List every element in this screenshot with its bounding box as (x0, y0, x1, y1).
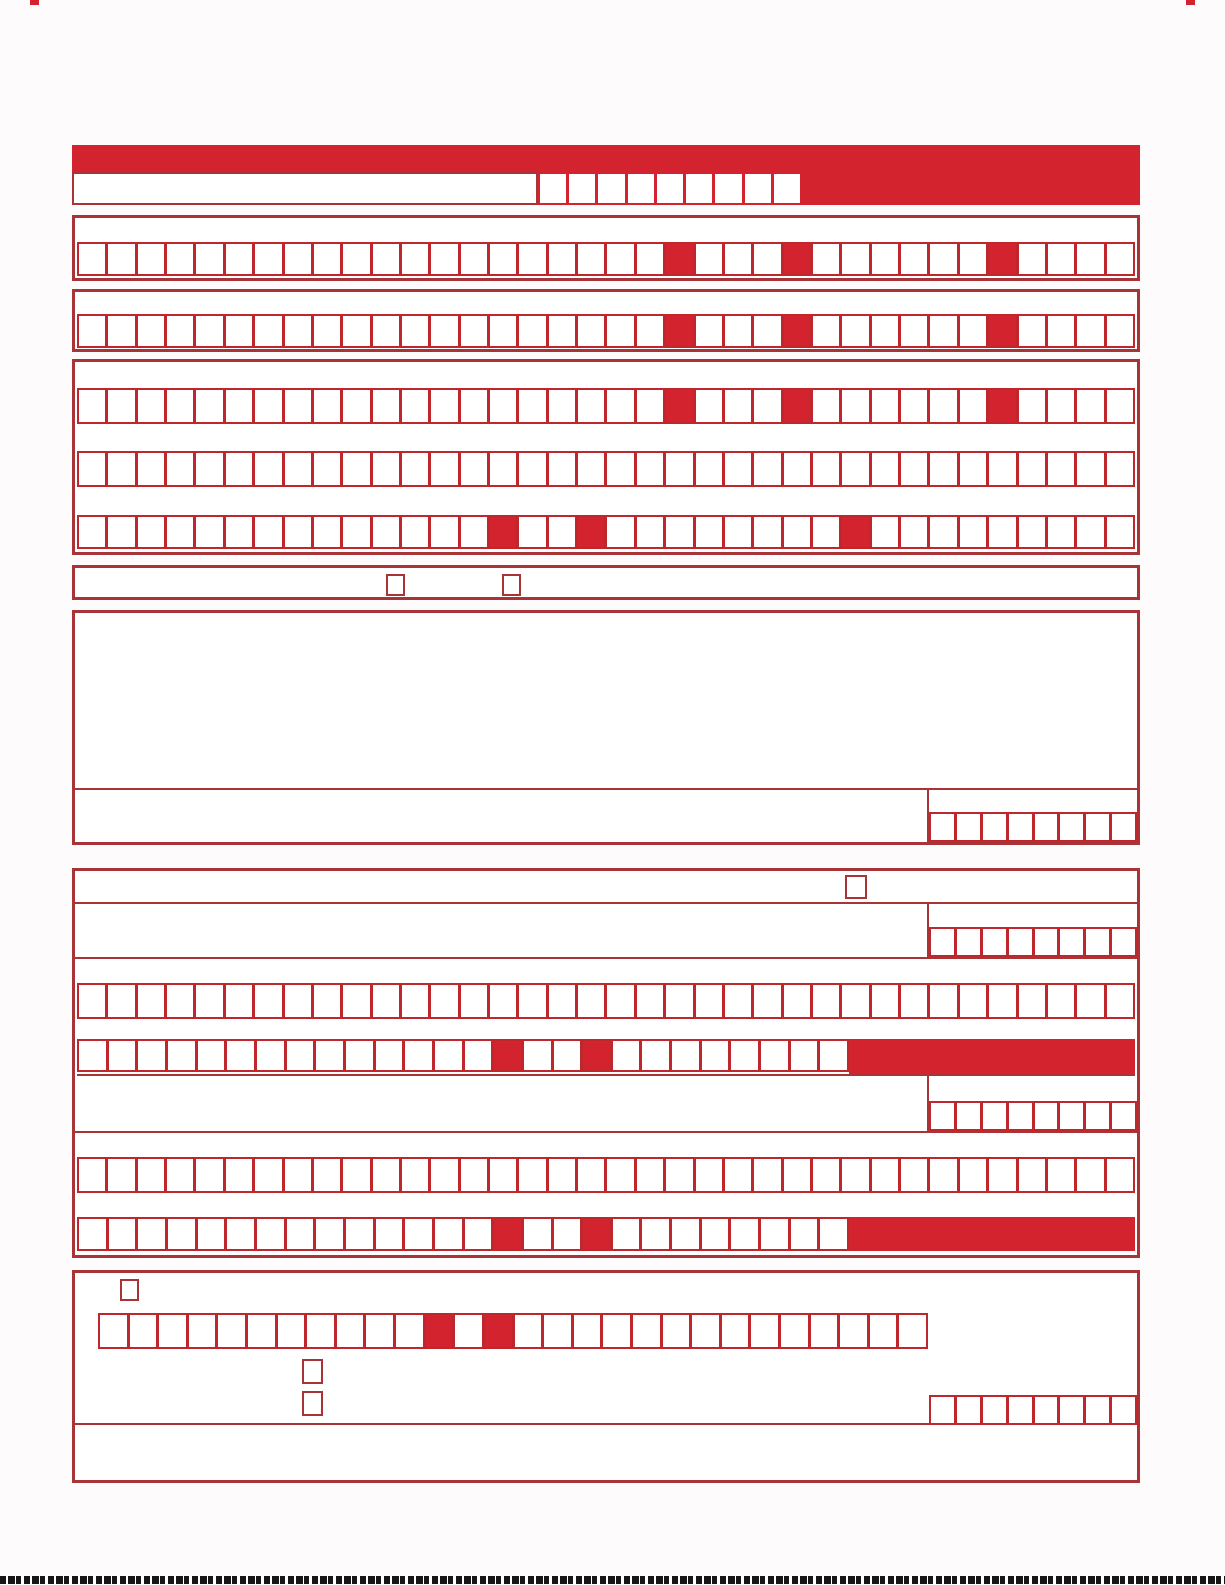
char-cell[interactable] (196, 517, 222, 547)
char-cell[interactable] (598, 174, 624, 203)
char-cell[interactable] (1060, 1103, 1083, 1129)
char-cell[interactable] (672, 1041, 699, 1070)
char-cell[interactable] (196, 1159, 222, 1191)
char-cell[interactable] (343, 316, 369, 346)
char-cell[interactable] (108, 1159, 134, 1191)
char-cell[interactable] (872, 390, 898, 422)
char-cell[interactable] (931, 1103, 954, 1129)
char-cell[interactable] (607, 453, 633, 485)
char-cell[interactable] (196, 453, 222, 485)
char-cell[interactable] (109, 1041, 136, 1070)
consent-checkbox-option-1[interactable] (302, 1359, 323, 1384)
char-cell[interactable] (435, 1041, 462, 1070)
char-cell[interactable] (784, 985, 810, 1017)
char-cell[interactable] (642, 1219, 669, 1249)
char-cell[interactable] (515, 1315, 542, 1347)
char-cell[interactable] (1077, 316, 1103, 346)
char-cell[interactable] (1019, 453, 1045, 485)
char-cell[interactable] (754, 1159, 780, 1191)
char-cell[interactable] (781, 1315, 808, 1347)
char-cell[interactable] (167, 517, 193, 547)
char-cell[interactable] (725, 1159, 751, 1191)
char-cell[interactable] (715, 174, 741, 203)
char-cell[interactable] (666, 517, 692, 547)
char-cell[interactable] (402, 453, 428, 485)
char-cell[interactable] (842, 316, 868, 346)
char-cell[interactable] (1048, 244, 1074, 274)
char-cell[interactable] (108, 453, 134, 485)
char-cell[interactable] (931, 1397, 954, 1423)
char-cell[interactable] (79, 244, 105, 274)
char-cell[interactable] (405, 1219, 432, 1249)
char-cell[interactable] (79, 1041, 106, 1070)
char-cell[interactable] (549, 517, 575, 547)
char-cell[interactable] (702, 1041, 729, 1070)
char-cell[interactable] (167, 1159, 193, 1191)
char-cell[interactable] (607, 1159, 633, 1191)
char-cell[interactable] (901, 985, 927, 1017)
char-cell[interactable] (490, 316, 516, 346)
char-cell[interactable] (1019, 390, 1045, 422)
char-cell[interactable] (960, 316, 986, 346)
char-cell[interactable] (549, 390, 575, 422)
char-cell[interactable] (257, 1041, 284, 1070)
char-cell[interactable] (666, 453, 692, 485)
char-cell[interactable] (872, 985, 898, 1017)
char-cell[interactable] (983, 814, 1006, 840)
char-cell[interactable] (1019, 1159, 1045, 1191)
option-checkbox-1[interactable] (386, 574, 405, 596)
char-cell[interactable] (1077, 244, 1103, 274)
char-cell[interactable] (872, 244, 898, 274)
char-cell[interactable] (168, 1041, 195, 1070)
char-cell[interactable] (930, 453, 956, 485)
char-cell[interactable] (722, 1315, 749, 1347)
char-cell[interactable] (316, 1041, 343, 1070)
char-cell[interactable] (79, 316, 105, 346)
char-cell[interactable] (79, 1159, 105, 1191)
char-cell[interactable] (549, 985, 575, 1017)
char-cell[interactable] (784, 517, 810, 547)
char-cell[interactable] (285, 390, 311, 422)
char-cell[interactable] (1112, 1103, 1135, 1129)
char-cell[interactable] (314, 244, 340, 274)
char-cell[interactable] (519, 244, 545, 274)
char-cell[interactable] (519, 316, 545, 346)
char-cell[interactable] (431, 316, 457, 346)
char-cell[interactable] (461, 985, 487, 1017)
char-cell[interactable] (574, 1315, 601, 1347)
char-cell[interactable] (519, 517, 545, 547)
char-cell[interactable] (731, 1041, 758, 1070)
char-cell[interactable] (226, 1159, 252, 1191)
char-cell[interactable] (901, 1159, 927, 1191)
char-cell[interactable] (431, 985, 457, 1017)
char-cell[interactable] (637, 985, 663, 1017)
char-cell[interactable] (524, 1041, 551, 1070)
char-cell[interactable] (791, 1219, 818, 1249)
char-cell[interactable] (402, 1159, 428, 1191)
char-cell[interactable] (343, 390, 369, 422)
char-cell[interactable] (578, 1159, 604, 1191)
char-cell[interactable] (813, 453, 839, 485)
char-cell[interactable] (1009, 1103, 1032, 1129)
char-cell[interactable] (465, 1041, 492, 1070)
consent-checkbox-option-2[interactable] (302, 1391, 323, 1416)
char-cell[interactable] (842, 985, 868, 1017)
char-cell[interactable] (725, 390, 751, 422)
char-cell[interactable] (255, 1159, 281, 1191)
char-cell[interactable] (1035, 1103, 1058, 1129)
char-cell[interactable] (226, 517, 252, 547)
char-cell[interactable] (1107, 1159, 1133, 1191)
char-cell[interactable] (108, 985, 134, 1017)
char-cell[interactable] (692, 1315, 719, 1347)
char-cell[interactable] (287, 1041, 314, 1070)
char-cell[interactable] (196, 390, 222, 422)
char-cell[interactable] (314, 1159, 340, 1191)
char-cell[interactable] (930, 985, 956, 1017)
char-cell[interactable] (607, 517, 633, 547)
char-cell[interactable] (544, 1315, 571, 1347)
char-cell[interactable] (813, 316, 839, 346)
char-cell[interactable] (366, 1315, 393, 1347)
char-cell[interactable] (957, 1397, 980, 1423)
char-cell[interactable] (578, 453, 604, 485)
char-cell[interactable] (813, 1159, 839, 1191)
entry-with-date-row[interactable] (75, 904, 1137, 959)
char-cell[interactable] (754, 316, 780, 346)
char-cell[interactable] (226, 453, 252, 485)
char-cell[interactable] (554, 1041, 581, 1070)
char-cell[interactable] (1048, 1159, 1074, 1191)
char-cell[interactable] (872, 453, 898, 485)
char-cell[interactable] (1086, 1397, 1109, 1423)
char-cell[interactable] (1035, 814, 1058, 840)
char-cell[interactable] (1035, 929, 1058, 955)
char-cell[interactable] (316, 1219, 343, 1249)
char-cell[interactable] (198, 1219, 225, 1249)
char-cell[interactable] (666, 985, 692, 1017)
char-cell[interactable] (519, 1159, 545, 1191)
char-cell[interactable] (346, 1219, 373, 1249)
char-cell[interactable] (603, 1315, 630, 1347)
char-cell[interactable] (1086, 1103, 1109, 1129)
char-cell[interactable] (373, 453, 399, 485)
char-cell[interactable] (314, 985, 340, 1017)
char-cell[interactable] (1077, 517, 1103, 547)
char-cell[interactable] (1107, 244, 1133, 274)
char-cell[interactable] (813, 244, 839, 274)
char-cell[interactable] (1035, 1397, 1058, 1423)
char-cell[interactable] (189, 1315, 216, 1347)
char-cell[interactable] (663, 1315, 690, 1347)
char-cell[interactable] (109, 1219, 136, 1249)
char-cell[interactable] (343, 1159, 369, 1191)
char-cell[interactable] (901, 453, 927, 485)
char-cell[interactable] (607, 316, 633, 346)
char-cell[interactable] (461, 517, 487, 547)
char-cell[interactable] (461, 453, 487, 485)
char-cell[interactable] (314, 316, 340, 346)
char-cell[interactable] (79, 1219, 106, 1249)
free-text-area[interactable] (75, 613, 1137, 790)
char-cell[interactable] (842, 1159, 868, 1191)
char-cell[interactable] (138, 453, 164, 485)
char-cell[interactable] (613, 1219, 640, 1249)
char-cell[interactable] (373, 517, 399, 547)
char-cell[interactable] (373, 316, 399, 346)
char-cell[interactable] (130, 1315, 157, 1347)
char-cell[interactable] (1077, 1159, 1103, 1191)
char-cell[interactable] (549, 244, 575, 274)
entry-with-date-row[interactable] (75, 1076, 1137, 1133)
char-cell[interactable] (167, 453, 193, 485)
char-cell[interactable] (628, 174, 654, 203)
char-cell[interactable] (226, 390, 252, 422)
char-cell[interactable] (842, 390, 868, 422)
char-cell[interactable] (108, 316, 134, 346)
char-cell[interactable] (159, 1315, 186, 1347)
char-cell[interactable] (725, 244, 751, 274)
char-cell[interactable] (1019, 244, 1045, 274)
char-cell[interactable] (226, 985, 252, 1017)
char-cell[interactable] (519, 453, 545, 485)
char-cell[interactable] (1112, 929, 1135, 955)
char-cell[interactable] (1060, 1397, 1083, 1423)
char-cell[interactable] (1048, 390, 1074, 422)
char-cell[interactable] (402, 390, 428, 422)
char-cell[interactable] (899, 1315, 926, 1347)
char-cell[interactable] (901, 316, 927, 346)
char-cell[interactable] (761, 1041, 788, 1070)
char-cell[interactable] (138, 1159, 164, 1191)
char-cell[interactable] (696, 517, 722, 547)
char-cell[interactable] (686, 174, 712, 203)
char-cell[interactable] (461, 390, 487, 422)
char-cell[interactable] (314, 517, 340, 547)
char-cell[interactable] (1077, 453, 1103, 485)
char-cell[interactable] (490, 1159, 516, 1191)
char-cell[interactable] (1060, 929, 1083, 955)
char-cell[interactable] (138, 985, 164, 1017)
char-cell[interactable] (1048, 316, 1074, 346)
char-cell[interactable] (1112, 814, 1135, 840)
char-cell[interactable] (960, 517, 986, 547)
char-cell[interactable] (813, 985, 839, 1017)
char-cell[interactable] (731, 1219, 758, 1249)
char-cell[interactable] (248, 1315, 275, 1347)
char-cell[interactable] (989, 453, 1015, 485)
char-cell[interactable] (578, 244, 604, 274)
char-cell[interactable] (376, 1219, 403, 1249)
char-cell[interactable] (138, 316, 164, 346)
char-cell[interactable] (376, 1041, 403, 1070)
char-cell[interactable] (255, 453, 281, 485)
char-cell[interactable] (431, 453, 457, 485)
char-cell[interactable] (1019, 316, 1045, 346)
char-cell[interactable] (490, 244, 516, 274)
char-cell[interactable] (337, 1315, 364, 1347)
char-cell[interactable] (285, 517, 311, 547)
char-cell[interactable] (343, 985, 369, 1017)
char-cell[interactable] (255, 985, 281, 1017)
char-cell[interactable] (79, 985, 105, 1017)
char-cell[interactable] (198, 1041, 225, 1070)
char-cell[interactable] (167, 316, 193, 346)
char-cell[interactable] (373, 985, 399, 1017)
header-name-field[interactable] (72, 172, 538, 205)
char-cell[interactable] (1107, 390, 1133, 422)
char-cell[interactable] (672, 1219, 699, 1249)
char-cell[interactable] (226, 316, 252, 346)
char-cell[interactable] (989, 985, 1015, 1017)
char-cell[interactable] (989, 517, 1015, 547)
char-cell[interactable] (1019, 985, 1045, 1017)
char-cell[interactable] (872, 517, 898, 547)
char-cell[interactable] (569, 174, 595, 203)
char-cell[interactable] (461, 244, 487, 274)
char-cell[interactable] (1019, 517, 1045, 547)
char-cell[interactable] (431, 1159, 457, 1191)
char-cell[interactable] (79, 390, 105, 422)
char-cell[interactable] (820, 1219, 847, 1249)
char-cell[interactable] (637, 453, 663, 485)
char-cell[interactable] (373, 390, 399, 422)
signature-row[interactable] (75, 790, 1137, 842)
char-cell[interactable] (957, 1103, 980, 1129)
char-cell[interactable] (725, 985, 751, 1017)
char-cell[interactable] (287, 1219, 314, 1249)
char-cell[interactable] (343, 453, 369, 485)
char-cell[interactable] (578, 316, 604, 346)
char-cell[interactable] (754, 517, 780, 547)
char-cell[interactable] (455, 1315, 482, 1347)
char-cell[interactable] (751, 1315, 778, 1347)
char-cell[interactable] (842, 453, 868, 485)
char-cell[interactable] (930, 517, 956, 547)
char-cell[interactable] (285, 1159, 311, 1191)
char-cell[interactable] (960, 244, 986, 274)
declaration-checkbox[interactable] (845, 875, 867, 899)
char-cell[interactable] (1107, 316, 1133, 346)
char-cell[interactable] (1009, 814, 1032, 840)
char-cell[interactable] (1112, 1397, 1135, 1423)
char-cell[interactable] (431, 390, 457, 422)
char-cell[interactable] (784, 1159, 810, 1191)
char-cell[interactable] (285, 244, 311, 274)
char-cell[interactable] (138, 390, 164, 422)
char-cell[interactable] (168, 1219, 195, 1249)
char-cell[interactable] (930, 1159, 956, 1191)
char-cell[interactable] (1060, 814, 1083, 840)
char-cell[interactable] (396, 1315, 423, 1347)
char-cell[interactable] (578, 985, 604, 1017)
char-cell[interactable] (524, 1219, 551, 1249)
char-cell[interactable] (285, 453, 311, 485)
char-cell[interactable] (811, 1315, 838, 1347)
char-cell[interactable] (1107, 985, 1133, 1017)
char-cell[interactable] (490, 453, 516, 485)
char-cell[interactable] (343, 244, 369, 274)
char-cell[interactable] (255, 517, 281, 547)
char-cell[interactable] (167, 390, 193, 422)
char-cell[interactable] (1107, 453, 1133, 485)
char-cell[interactable] (901, 390, 927, 422)
char-cell[interactable] (138, 1041, 165, 1070)
char-cell[interactable] (931, 814, 954, 840)
char-cell[interactable] (901, 517, 927, 547)
char-cell[interactable] (227, 1219, 254, 1249)
char-cell[interactable] (1077, 390, 1103, 422)
char-cell[interactable] (983, 1397, 1006, 1423)
char-cell[interactable] (554, 1219, 581, 1249)
char-cell[interactable] (637, 316, 663, 346)
char-cell[interactable] (431, 517, 457, 547)
char-cell[interactable] (108, 244, 134, 274)
char-cell[interactable] (960, 985, 986, 1017)
char-cell[interactable] (642, 1041, 669, 1070)
char-cell[interactable] (1086, 814, 1109, 840)
char-cell[interactable] (696, 453, 722, 485)
char-cell[interactable] (613, 1041, 640, 1070)
char-cell[interactable] (1086, 929, 1109, 955)
char-cell[interactable] (872, 1159, 898, 1191)
char-cell[interactable] (960, 453, 986, 485)
char-cell[interactable] (960, 390, 986, 422)
char-cell[interactable] (257, 1219, 284, 1249)
char-cell[interactable] (930, 244, 956, 274)
char-cell[interactable] (813, 517, 839, 547)
char-cell[interactable] (1107, 517, 1133, 547)
char-cell[interactable] (791, 1041, 818, 1070)
char-cell[interactable] (405, 1041, 432, 1070)
char-cell[interactable] (402, 316, 428, 346)
char-cell[interactable] (255, 244, 281, 274)
char-cell[interactable] (957, 929, 980, 955)
char-cell[interactable] (549, 316, 575, 346)
char-cell[interactable] (431, 244, 457, 274)
char-cell[interactable] (540, 174, 566, 203)
char-cell[interactable] (138, 517, 164, 547)
char-cell[interactable] (346, 1041, 373, 1070)
char-cell[interactable] (1077, 985, 1103, 1017)
char-cell[interactable] (745, 174, 771, 203)
char-cell[interactable] (1048, 453, 1074, 485)
char-cell[interactable] (196, 985, 222, 1017)
char-cell[interactable] (167, 244, 193, 274)
char-cell[interactable] (402, 244, 428, 274)
char-cell[interactable] (761, 1219, 788, 1249)
char-cell[interactable] (774, 174, 800, 203)
char-cell[interactable] (607, 244, 633, 274)
char-cell[interactable] (637, 390, 663, 422)
char-cell[interactable] (931, 929, 954, 955)
char-cell[interactable] (754, 390, 780, 422)
char-cell[interactable] (696, 985, 722, 1017)
char-cell[interactable] (637, 244, 663, 274)
char-cell[interactable] (519, 390, 545, 422)
char-cell[interactable] (754, 985, 780, 1017)
char-cell[interactable] (402, 517, 428, 547)
consent-checkbox-main[interactable] (120, 1279, 139, 1301)
char-cell[interactable] (314, 390, 340, 422)
char-cell[interactable] (196, 244, 222, 274)
char-cell[interactable] (957, 814, 980, 840)
char-cell[interactable] (784, 453, 810, 485)
char-cell[interactable] (490, 985, 516, 1017)
char-cell[interactable] (872, 316, 898, 346)
